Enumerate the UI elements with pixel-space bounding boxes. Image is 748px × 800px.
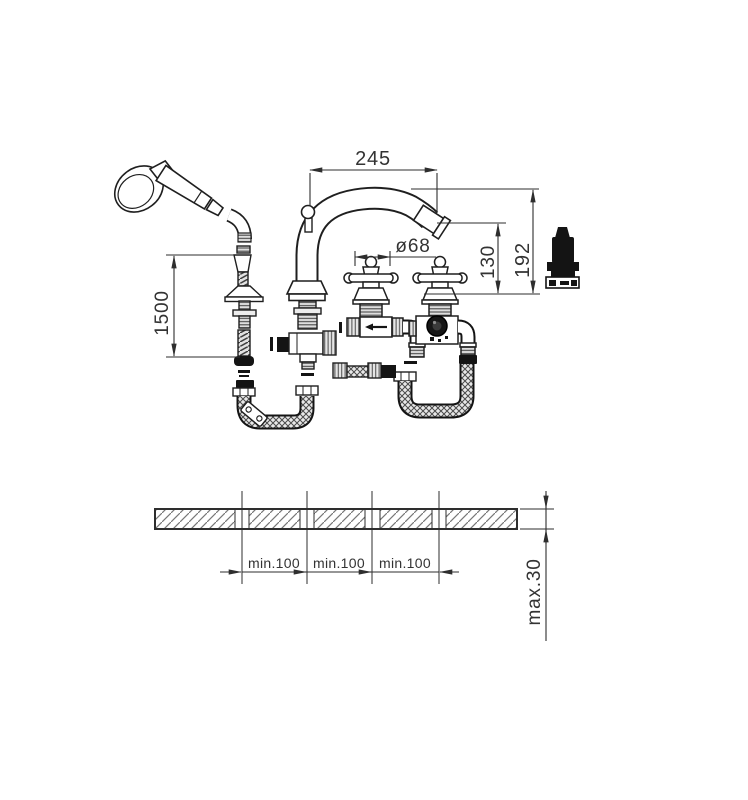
hole-spacing-label-3: min.100	[379, 555, 431, 571]
left-handle-valve	[339, 257, 425, 365]
hand-shower-handle	[156, 165, 225, 219]
faucet-technical-drawing: 245 ø68 130 192 1500 min.100 min.100 min…	[0, 0, 748, 800]
hose-length-label: 1500	[152, 290, 173, 335]
spout-projection-label: 245	[355, 148, 391, 170]
hole-spacing-label-1: min.100	[248, 555, 300, 571]
cartridge-silhouette	[546, 227, 579, 288]
cartridge-port	[427, 316, 447, 336]
hand-shower-connector	[229, 215, 251, 242]
hose-length-dimension	[166, 255, 240, 357]
deck-thickness-label: max.30	[524, 558, 545, 625]
outlet-height-label: 130	[478, 245, 499, 279]
drawing-sheet: 245 ø68 130 192 1500 min.100 min.100 min…	[0, 0, 748, 800]
dimension-labels: 245 ø68 130 192 1500 min.100 min.100 min…	[152, 148, 545, 626]
middle-connector-hose	[333, 363, 396, 378]
spout-valve-body	[270, 301, 336, 376]
shower-holder-column	[225, 246, 263, 396]
handle-diameter-label: ø68	[395, 236, 430, 257]
hole-spacing-label-2: min.100	[313, 555, 365, 571]
right-connection-hose	[394, 364, 467, 411]
hand-shower	[106, 149, 251, 242]
spout-top-height-label: 192	[512, 242, 534, 278]
